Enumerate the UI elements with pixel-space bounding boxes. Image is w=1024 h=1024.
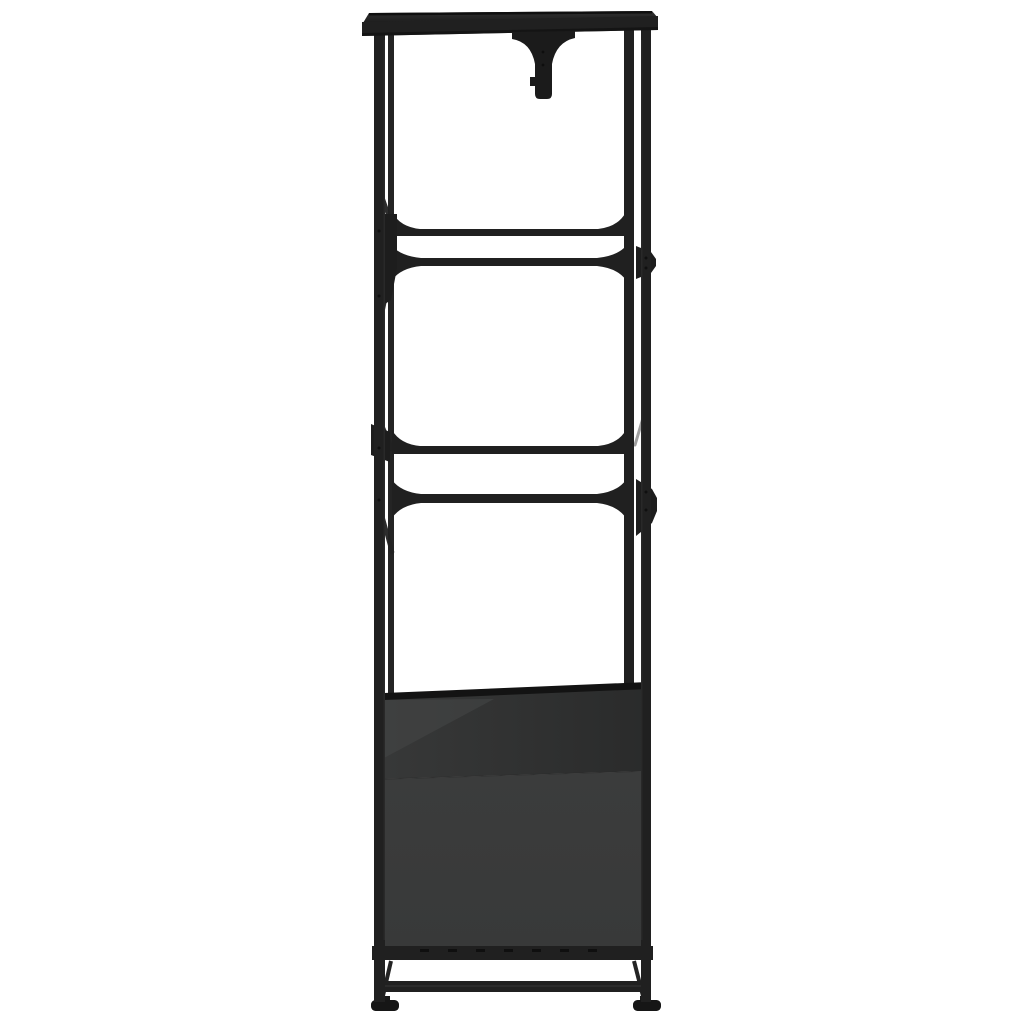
screw-dot <box>542 51 545 54</box>
vent-dash <box>504 949 513 952</box>
vent-dash <box>532 949 541 952</box>
vent-dash <box>588 949 597 952</box>
vent-dash <box>448 949 457 952</box>
screw-dot <box>378 230 381 233</box>
vent-dash <box>476 949 485 952</box>
screw-dot <box>645 257 648 260</box>
right-post-highlight <box>641 40 643 940</box>
lower-crossbar-highlight <box>375 985 651 987</box>
screw-dot <box>542 64 545 67</box>
bottom-rail <box>372 946 653 960</box>
wardrobe-side-view-illustration <box>0 0 1024 1024</box>
screw-dot <box>378 295 381 298</box>
screw-dot <box>378 499 381 502</box>
screw-dot <box>378 447 381 450</box>
vent-dash <box>420 949 429 952</box>
screw-dot <box>645 509 648 512</box>
hanging-rail-tab <box>530 77 536 86</box>
cabinet-panel <box>384 682 648 948</box>
screw-dot <box>645 491 648 494</box>
left-outer-post <box>374 28 385 1002</box>
left-post-highlight <box>384 40 386 940</box>
screw-dot <box>645 267 648 270</box>
right-inner-post <box>624 30 634 704</box>
vent-dash <box>560 949 569 952</box>
left-inner-post <box>388 30 394 704</box>
cabinet-panel-lower <box>384 771 648 948</box>
product-photo <box>0 0 1024 1024</box>
